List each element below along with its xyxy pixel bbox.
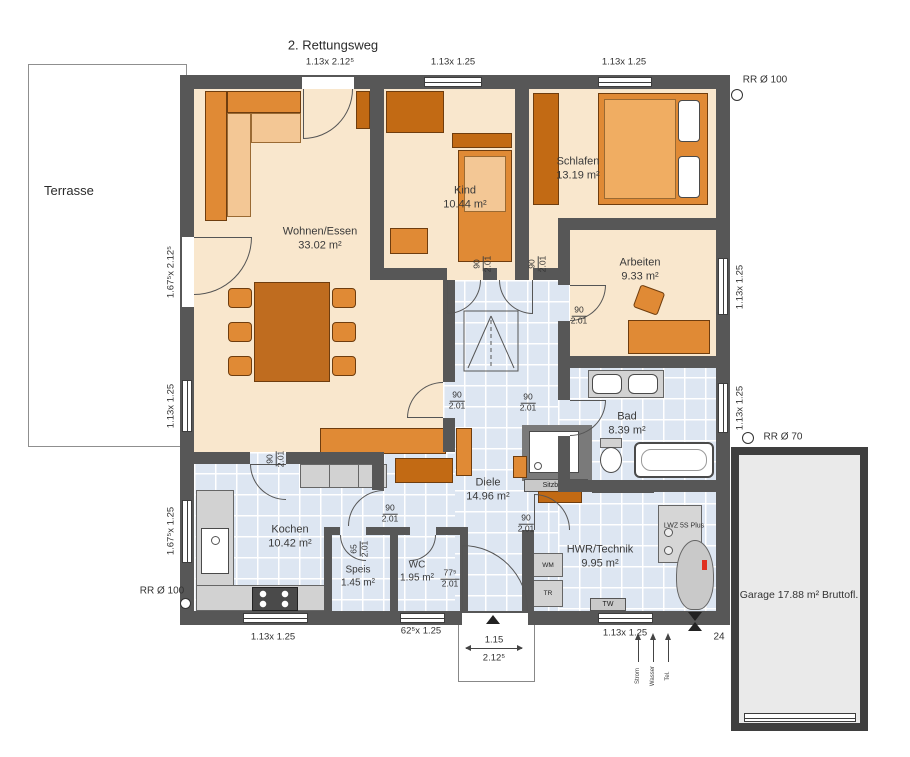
tw-label: TW xyxy=(590,598,626,611)
wall xyxy=(366,527,410,535)
door-dim-arbeiten: 902.01 xyxy=(571,306,588,327)
window-dim: 1.67⁵x 1.25 xyxy=(166,507,177,555)
room-name: Wohnen/Essen xyxy=(283,225,357,239)
drain-dot xyxy=(534,462,542,470)
room-label-diele: Diele14.96 m² xyxy=(466,476,509,504)
dining-table xyxy=(254,282,330,382)
door-dim-kind: 902.01 xyxy=(473,256,494,273)
utility-arrowhead xyxy=(650,633,656,640)
wall xyxy=(436,527,468,535)
dining-chair xyxy=(228,356,252,376)
room-label-kind: Kind10.44 m² xyxy=(443,184,486,212)
water-tank xyxy=(676,540,714,610)
terrace-door-left-opening xyxy=(182,237,194,307)
utility-label-strom: Strom xyxy=(635,668,641,684)
door-dim-kochen: 902.01 xyxy=(266,451,287,468)
room-area: 14.96 m² xyxy=(466,490,509,504)
downpipe-circle xyxy=(742,432,754,444)
room-area: 33.02 m² xyxy=(298,239,341,253)
room-label-bad: Bad8.39 m² xyxy=(608,410,645,438)
hall-cabinet xyxy=(456,428,472,476)
sink xyxy=(628,374,658,394)
bed-blanket xyxy=(604,99,676,199)
wall xyxy=(515,89,529,280)
window-dim: 1.13x 1.25 xyxy=(251,632,295,643)
door-leaf xyxy=(194,237,252,238)
wall xyxy=(558,480,716,492)
door-dim-bad: 902.01 xyxy=(520,393,537,414)
wall xyxy=(372,452,384,490)
window-kochen-left xyxy=(182,500,192,563)
room-label-hwr: HWR/Technik9.95 m² xyxy=(567,543,634,571)
door-height: 2.01 xyxy=(484,256,494,273)
toilet-bad xyxy=(600,447,622,473)
door-leaf xyxy=(447,280,448,314)
door-height: 2.01 xyxy=(277,451,287,468)
room-name: Bad xyxy=(617,410,637,424)
wall xyxy=(384,268,447,280)
dryer: TR xyxy=(533,580,563,607)
wall xyxy=(324,527,340,535)
floor-plan: Terrasse Garage 17.88 m² Bruttofl. Sit xyxy=(0,0,910,757)
window-dim: 1.13x 1.25 xyxy=(166,384,177,428)
wm-label: WM xyxy=(542,562,554,569)
door-height: 2.01 xyxy=(442,580,459,590)
room-area: 10.42 m² xyxy=(268,537,311,551)
kind-desk xyxy=(390,228,428,254)
utility-label-wasser: Wasser xyxy=(650,666,656,686)
door-height: 2.01 xyxy=(571,317,588,327)
door-height: 2.01 xyxy=(520,404,537,414)
window-dim: 1.13x 2.12⁵ xyxy=(306,57,354,68)
window-schlafen xyxy=(598,77,652,87)
garage-label: Garage 17.88 m² Bruttofl. xyxy=(740,589,858,601)
window-kind xyxy=(424,77,482,87)
utility-arrowhead xyxy=(665,633,671,640)
room-name: Arbeiten xyxy=(620,256,661,270)
wall xyxy=(558,321,570,400)
room-area: 9.95 m² xyxy=(581,557,618,571)
room-label-speis: Speis1.45 m² xyxy=(341,565,375,590)
terrace-door-top-opening xyxy=(302,77,354,89)
room-name: Kind xyxy=(454,184,476,198)
window-wc xyxy=(400,613,445,623)
window-kochen-bottom xyxy=(243,613,308,623)
entry-step-marker xyxy=(486,615,500,624)
terrace-outline xyxy=(28,64,187,447)
door-dim-wc: 77⁵2.01 xyxy=(441,569,460,590)
utility-label-tel: Tel. xyxy=(665,671,671,680)
red-marker xyxy=(702,560,707,570)
rr-label-right: RR Ø 70 xyxy=(764,432,803,443)
sideboard xyxy=(320,428,446,454)
living-cabinet xyxy=(356,91,370,129)
sofa-back-top xyxy=(227,91,301,113)
wall xyxy=(443,418,455,452)
pipe-dot xyxy=(664,546,673,555)
downpipe-circle xyxy=(731,89,743,101)
dining-chair xyxy=(228,288,252,308)
stove xyxy=(252,587,298,611)
entry-width-dim: 1.15 xyxy=(485,635,504,646)
room-name: Diele xyxy=(475,476,500,490)
door-height: 2.01 xyxy=(361,541,371,558)
kind-wardrobe xyxy=(386,91,444,133)
kitchen-sink xyxy=(201,528,229,574)
lwz-label: LWZ 5S Plus xyxy=(664,523,704,530)
door-dim-schlafen: 902.01 xyxy=(528,256,549,273)
door-leaf xyxy=(532,280,533,314)
rr-label-top-right: RR Ø 100 xyxy=(743,75,787,86)
door-leaf xyxy=(407,417,443,418)
utility-line xyxy=(653,640,654,662)
wall xyxy=(558,218,716,230)
room-name: Kochen xyxy=(271,523,308,537)
room-area: 9.33 m² xyxy=(621,270,658,284)
wall xyxy=(286,452,372,464)
washing-machine: WM xyxy=(533,553,563,577)
window-hwr xyxy=(598,613,653,623)
room-label-schlafen: Schlafen13.19 m² xyxy=(556,155,599,183)
desk xyxy=(628,320,710,354)
door-height: 2.01 xyxy=(518,525,535,535)
window-dim: 1.13x 1.25 xyxy=(735,386,746,430)
door-dim-speis: 652.01 xyxy=(350,541,371,558)
door-leaf xyxy=(462,545,463,611)
dining-chair xyxy=(332,322,356,342)
faucet-dot xyxy=(211,536,220,545)
door-dim-diele-kochen: 902.01 xyxy=(382,504,399,525)
door-height: 2.01 xyxy=(539,256,549,273)
window-bad xyxy=(718,383,728,433)
corner-mark: 24 xyxy=(713,632,724,643)
door-leaf xyxy=(303,89,304,139)
window-wohnen xyxy=(182,380,192,432)
bathtub-inner xyxy=(641,449,707,471)
wall xyxy=(558,230,570,285)
window-dim: 1.13x 1.25 xyxy=(735,265,746,309)
tr-label: TR xyxy=(544,590,553,597)
dining-chair xyxy=(332,356,356,376)
window-dim: 1.67⁵x 2.12⁵ xyxy=(166,246,177,298)
room-name: WC xyxy=(409,560,426,573)
room-label-wc: WC1.95 m² xyxy=(400,560,434,585)
entry-dim-line xyxy=(466,648,522,649)
terrace-label: Terrasse xyxy=(44,183,94,198)
utility-line xyxy=(668,640,669,662)
wall xyxy=(390,535,398,611)
wall xyxy=(324,535,332,611)
kind-shelf xyxy=(452,133,512,148)
rescue-route-label: 2. Rettungsweg xyxy=(288,38,378,53)
sofa-back-left xyxy=(205,91,227,221)
room-area: 1.95 m² xyxy=(400,572,434,585)
wardrobe-hall xyxy=(395,458,453,483)
room-area: 13.19 m² xyxy=(556,169,599,183)
window-dim: 1.13x 1.25 xyxy=(431,57,475,68)
room-area: 10.44 m² xyxy=(443,198,486,212)
door-dim-hwr: 902.01 xyxy=(518,514,535,535)
utility-arrowhead xyxy=(635,633,641,640)
dining-chair xyxy=(332,288,356,308)
sofa-seat-top xyxy=(251,113,301,143)
loft-ladder-symbol xyxy=(463,310,519,372)
window-dim: 1.13x 1.25 xyxy=(602,57,646,68)
room-label-arbeiten: Arbeiten9.33 m² xyxy=(620,256,661,284)
hall-cabinet-small xyxy=(513,456,527,478)
window-dim: 62⁵x 1.25 xyxy=(401,626,441,637)
wall xyxy=(716,75,730,625)
door-leaf xyxy=(570,285,606,286)
utility-line xyxy=(638,640,639,662)
door-dim-wohnen: 902.01 xyxy=(449,391,466,412)
room-name: Speis xyxy=(345,565,370,578)
room-label-kochen: Kochen10.42 m² xyxy=(268,523,311,551)
sofa-seat-left xyxy=(227,113,251,217)
wall xyxy=(194,452,250,464)
room-label-wohnen-essen: Wohnen/Essen33.02 m² xyxy=(283,225,357,253)
door-height: 2.01 xyxy=(449,402,466,412)
garage-door xyxy=(744,713,856,722)
sink xyxy=(592,374,622,394)
room-area: 8.39 m² xyxy=(608,424,645,438)
entry-height-dim: 2.12⁵ xyxy=(483,653,505,664)
pillow xyxy=(678,100,700,142)
room-area: 1.45 m² xyxy=(341,577,375,590)
drain-symbol-bottom xyxy=(688,622,702,631)
pillow xyxy=(678,156,700,198)
rr-label-bottom-left: RR Ø 100 xyxy=(140,586,184,597)
room-name: Schlafen xyxy=(557,155,600,169)
downpipe-circle xyxy=(180,598,191,609)
schlafen-wardrobe xyxy=(533,93,559,205)
dining-chair xyxy=(228,322,252,342)
door-leaf xyxy=(570,400,606,401)
drain-symbol-top xyxy=(688,612,702,621)
window-arbeiten xyxy=(718,258,728,315)
door-height: 2.01 xyxy=(382,515,399,525)
wall xyxy=(570,356,716,368)
wall xyxy=(370,89,384,280)
room-name: HWR/Technik xyxy=(567,543,634,557)
